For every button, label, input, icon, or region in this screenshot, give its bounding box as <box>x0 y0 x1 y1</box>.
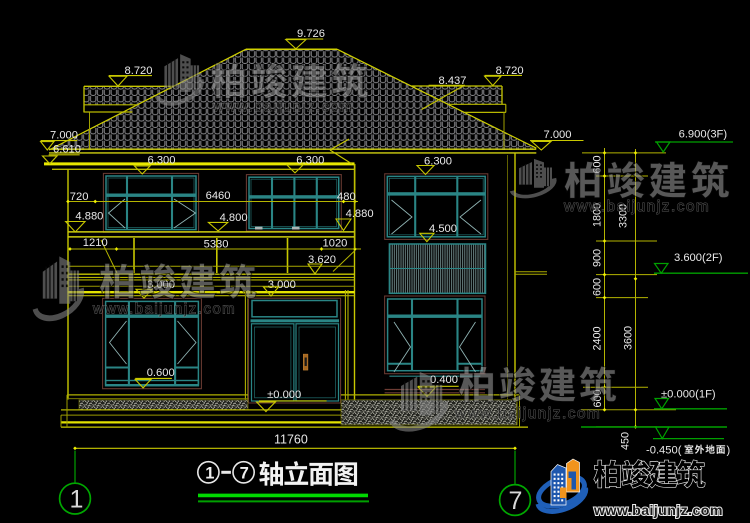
svg-text:3.000: 3.000 <box>268 279 296 291</box>
svg-text:480: 480 <box>337 191 356 203</box>
svg-text:www.baijunjz.com: www.baijunjz.com <box>212 100 354 116</box>
svg-text:1020: 1020 <box>323 238 348 250</box>
svg-text:www.baijunjz.com: www.baijunjz.com <box>593 503 723 519</box>
svg-text:11760: 11760 <box>274 433 308 447</box>
svg-text:5330: 5330 <box>204 239 229 251</box>
svg-text:www.baijunjz.com: www.baijunjz.com <box>454 405 601 422</box>
svg-text:www.baijunjz.com: www.baijunjz.com <box>92 302 236 318</box>
svg-text:6.610: 6.610 <box>53 144 81 156</box>
svg-text:6460: 6460 <box>206 190 231 202</box>
svg-text:4.880: 4.880 <box>75 210 103 222</box>
svg-text:900: 900 <box>591 249 603 267</box>
svg-text:±0.000: ±0.000 <box>267 389 301 401</box>
svg-text:7: 7 <box>509 487 523 515</box>
svg-text:720: 720 <box>70 191 89 203</box>
svg-text:3600: 3600 <box>622 326 634 350</box>
svg-text:0.600: 0.600 <box>147 367 175 379</box>
svg-text:9.726: 9.726 <box>297 28 325 40</box>
svg-text:4.880: 4.880 <box>346 208 374 220</box>
svg-text:7: 7 <box>240 464 249 482</box>
svg-text:450: 450 <box>619 432 631 450</box>
svg-text:1: 1 <box>205 464 214 482</box>
svg-text:7.000: 7.000 <box>544 129 572 141</box>
svg-text:0.400: 0.400 <box>430 374 458 386</box>
svg-text:7.000: 7.000 <box>50 130 78 142</box>
svg-text:6.900(3F): 6.900(3F) <box>679 128 728 140</box>
svg-text:1: 1 <box>70 486 84 514</box>
svg-text:-0.450(: -0.450( <box>646 445 682 457</box>
svg-text:6.300: 6.300 <box>148 155 176 167</box>
svg-text:3.600(2F): 3.600(2F) <box>674 252 723 264</box>
svg-text:1210: 1210 <box>83 237 108 249</box>
svg-text:): ) <box>727 445 731 457</box>
svg-text:2400: 2400 <box>591 326 603 350</box>
svg-text:600: 600 <box>591 278 603 296</box>
svg-text:www.baijunjz.com: www.baijunjz.com <box>563 198 710 215</box>
svg-text:±0.000(1F): ±0.000(1F) <box>661 389 716 401</box>
